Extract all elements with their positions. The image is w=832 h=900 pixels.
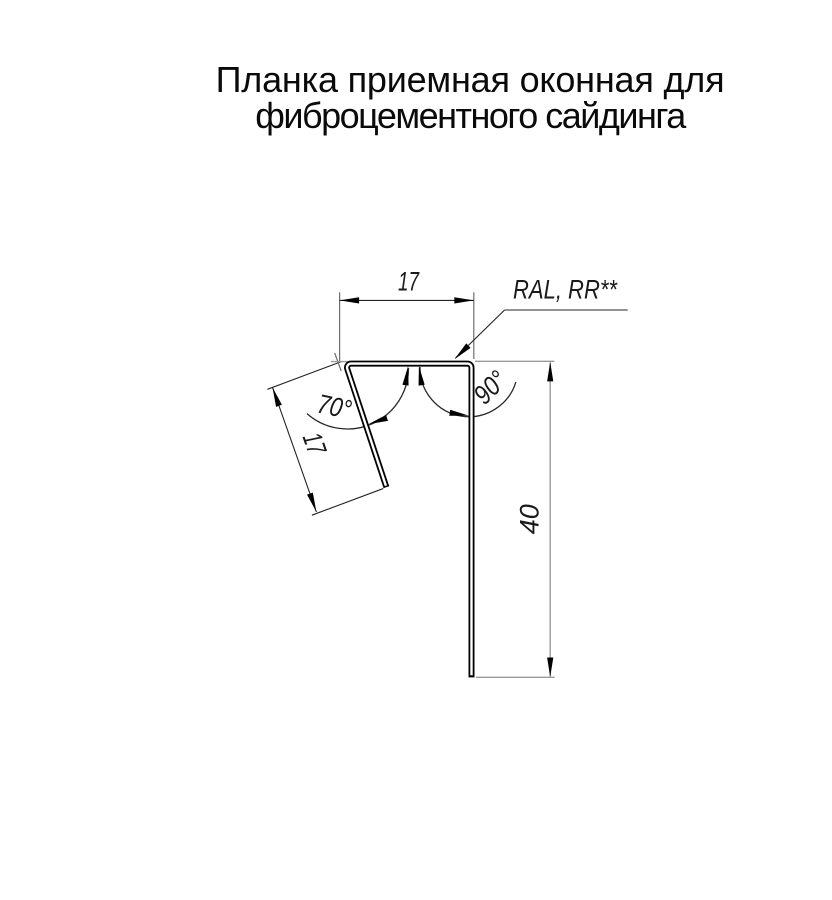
svg-text:70°: 70° — [315, 389, 355, 425]
svg-text:17: 17 — [398, 267, 420, 297]
svg-text:17: 17 — [297, 429, 332, 459]
svg-text:40: 40 — [514, 504, 544, 534]
svg-text:RAL, RR**: RAL, RR** — [513, 275, 618, 305]
